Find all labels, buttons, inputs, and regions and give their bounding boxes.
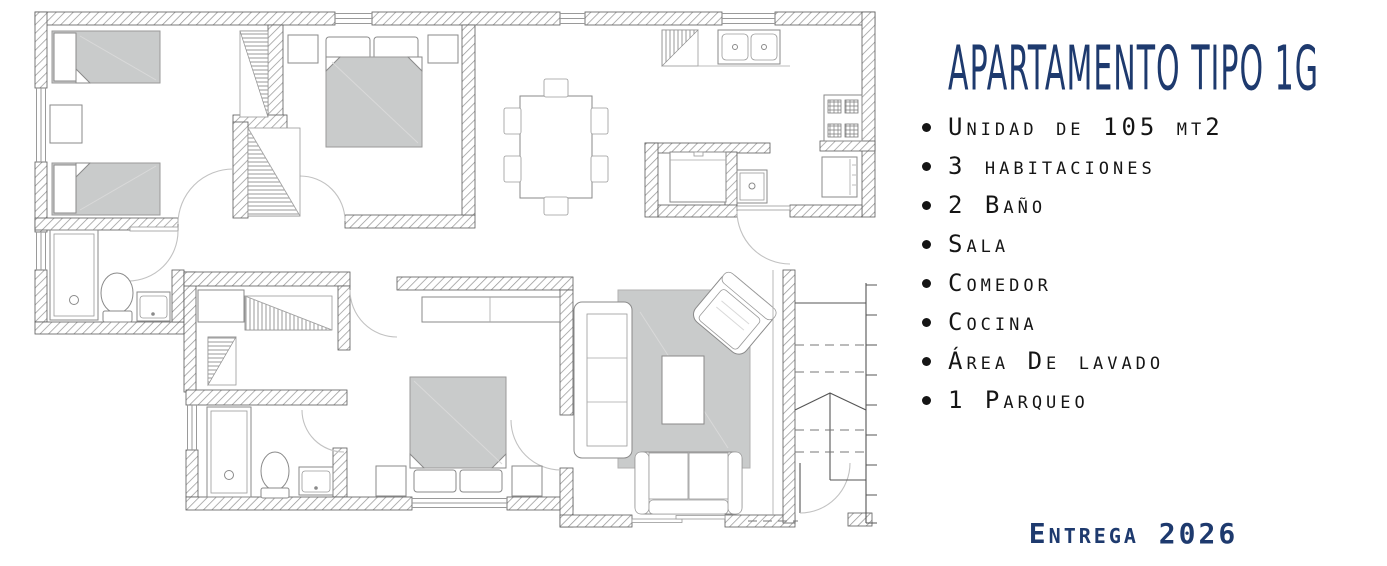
bullet-dot bbox=[922, 123, 931, 132]
chair bbox=[544, 197, 568, 215]
door-arc bbox=[302, 410, 344, 452]
feature-item: Cocina bbox=[922, 309, 1224, 335]
door-arc bbox=[511, 420, 561, 470]
hallway-closets bbox=[198, 290, 332, 385]
feature-list: Unidad de 105 mt2 3 habitaciones 2 Baño … bbox=[922, 114, 1224, 426]
chair bbox=[591, 156, 608, 182]
toilet-tank bbox=[103, 311, 132, 322]
door-arc bbox=[350, 290, 397, 337]
stairs bbox=[795, 283, 877, 523]
feature-label: Área De lavado bbox=[948, 347, 1164, 375]
kitchen bbox=[662, 30, 862, 141]
nightstand bbox=[512, 466, 542, 496]
chair bbox=[504, 156, 521, 182]
door-arc bbox=[300, 176, 345, 221]
info-panel: APARTAMENTO TIPO 1G Unidad de 105 mt2 3 … bbox=[880, 0, 1387, 566]
feature-label: 2 Baño bbox=[948, 191, 1046, 219]
feature-item: 1 Parqueo bbox=[922, 387, 1224, 413]
bathroom-2 bbox=[207, 407, 333, 498]
pillow bbox=[414, 470, 456, 492]
loveseat bbox=[635, 452, 742, 514]
toilet bbox=[261, 452, 289, 490]
feature-item: Área De lavado bbox=[922, 348, 1224, 374]
chair bbox=[544, 79, 568, 97]
door-leaf bbox=[737, 206, 790, 210]
feature-item: Comedor bbox=[922, 270, 1224, 296]
door-leaf bbox=[130, 227, 178, 231]
nightstand bbox=[288, 35, 318, 63]
pillow bbox=[54, 33, 76, 81]
chair bbox=[591, 108, 608, 134]
washer bbox=[670, 152, 726, 202]
living-room bbox=[574, 270, 798, 521]
bedroom-3 bbox=[376, 297, 560, 496]
flyer: APARTAMENTO TIPO 1G Unidad de 105 mt2 3 … bbox=[0, 0, 1387, 566]
door-arc bbox=[737, 211, 790, 264]
bathroom-1 bbox=[50, 230, 170, 322]
bullet-dot bbox=[922, 201, 931, 210]
shelf bbox=[198, 290, 244, 322]
burner bbox=[828, 124, 841, 137]
burner bbox=[828, 100, 841, 113]
door-arc bbox=[178, 169, 233, 224]
sliding-door bbox=[632, 519, 682, 523]
bullet-dot bbox=[922, 240, 931, 249]
feature-label: Comedor bbox=[948, 269, 1052, 297]
feature-label: Cocina bbox=[948, 308, 1038, 336]
feature-item: 3 habitaciones bbox=[922, 153, 1224, 179]
bullet-dot bbox=[922, 357, 931, 366]
nightstand bbox=[376, 466, 406, 496]
feature-label: 1 Parqueo bbox=[948, 386, 1089, 414]
dining-table bbox=[520, 96, 592, 198]
door-arc bbox=[128, 231, 178, 281]
bedroom-2 bbox=[288, 35, 458, 147]
toilet bbox=[101, 273, 133, 313]
fridge bbox=[822, 157, 857, 197]
toilet-tank bbox=[261, 488, 289, 498]
page-title: APARTAMENTO TIPO 1G bbox=[948, 34, 1319, 106]
delivery-year: Entrega 2026 bbox=[880, 517, 1387, 550]
pillow bbox=[460, 470, 502, 492]
bullet-dot bbox=[922, 279, 931, 288]
bullet-dot bbox=[922, 396, 931, 405]
feature-item: 2 Baño bbox=[922, 192, 1224, 218]
dining-room bbox=[504, 79, 608, 215]
door-arc bbox=[800, 463, 850, 513]
nightstand bbox=[50, 105, 82, 143]
chair bbox=[504, 108, 521, 134]
feature-item: Unidad de 105 mt2 bbox=[922, 114, 1224, 140]
bullet-dot bbox=[922, 162, 931, 171]
sliding-door bbox=[676, 516, 725, 520]
feature-label: Unidad de 105 mt2 bbox=[948, 113, 1224, 141]
coffee-table bbox=[662, 356, 704, 424]
nightstand bbox=[428, 35, 458, 63]
feature-label: 3 habitaciones bbox=[948, 152, 1156, 180]
dresser bbox=[422, 297, 560, 322]
feature-item: Sala bbox=[922, 231, 1224, 257]
burner bbox=[845, 100, 858, 113]
laundry-area bbox=[670, 152, 857, 203]
feature-label: Sala bbox=[948, 230, 1009, 258]
floor-plan bbox=[0, 0, 880, 566]
bullet-dot bbox=[922, 318, 931, 327]
burner bbox=[845, 124, 858, 137]
pillow bbox=[54, 165, 76, 213]
